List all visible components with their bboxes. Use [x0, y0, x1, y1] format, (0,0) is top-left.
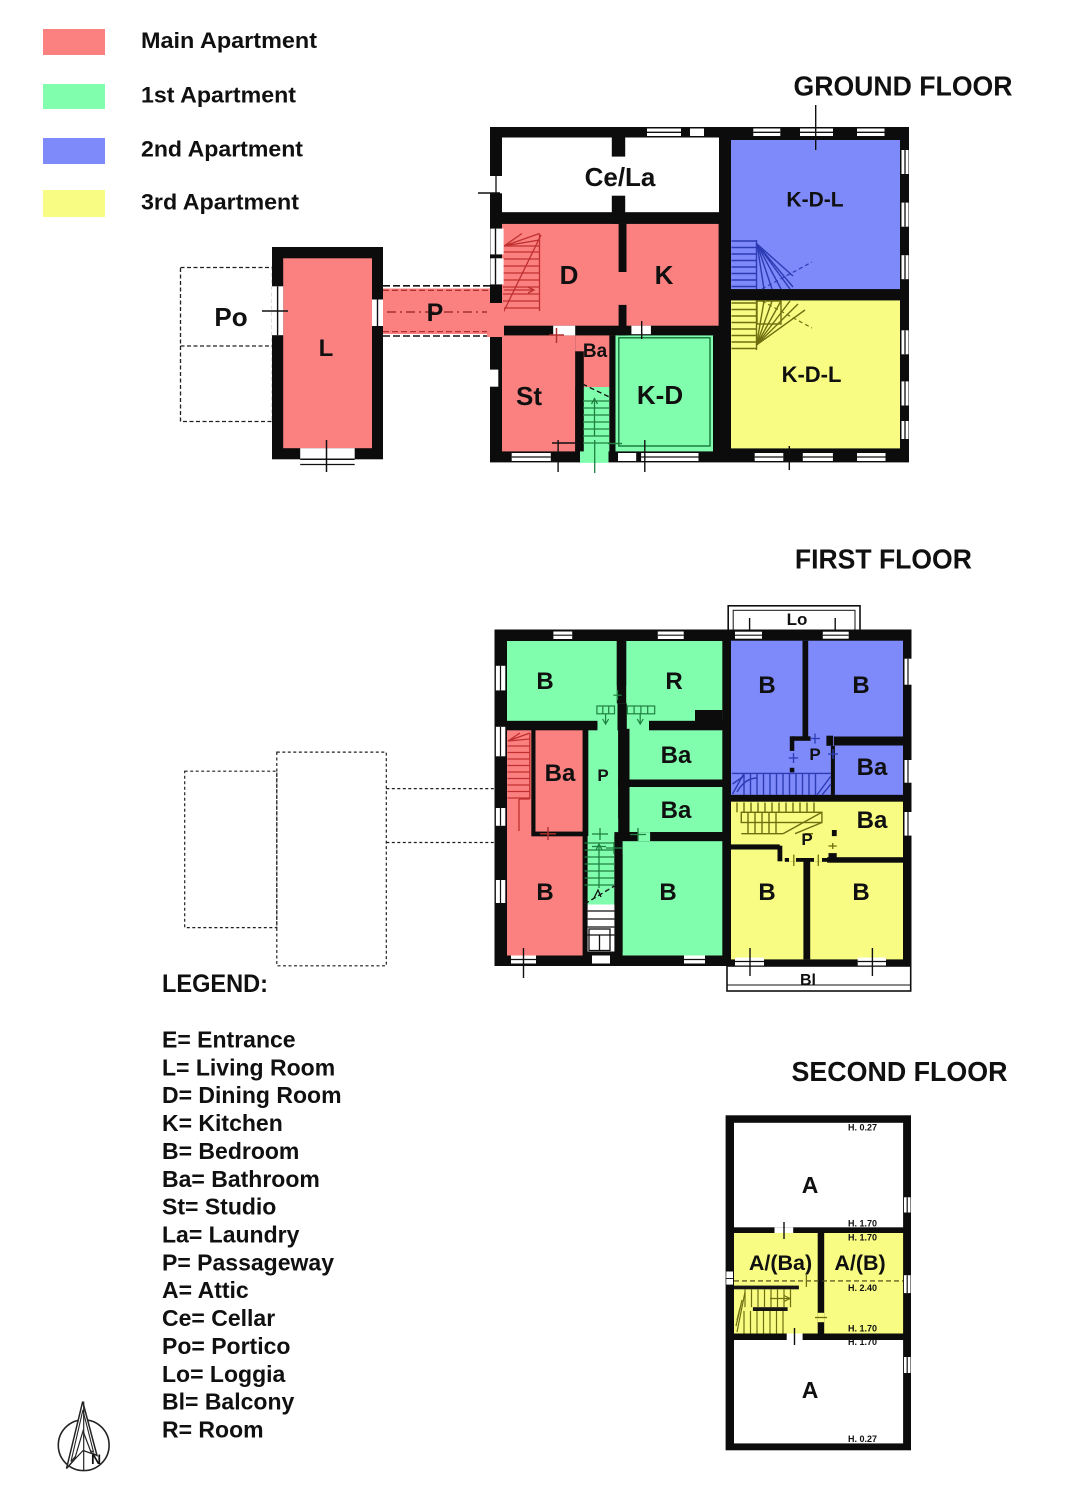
- svg-text:R: R: [665, 668, 682, 695]
- svg-text:P: P: [427, 299, 444, 327]
- svg-text:P= Passageway: P= Passageway: [162, 1249, 334, 1275]
- svg-text:Ba: Ba: [857, 807, 888, 834]
- svg-text:A/(Ba): A/(Ba): [749, 1251, 812, 1275]
- svg-text:B: B: [758, 672, 775, 699]
- svg-text:P: P: [597, 766, 608, 785]
- svg-text:B= Bedroom: B= Bedroom: [162, 1138, 299, 1164]
- svg-text:A= Attic: A= Attic: [162, 1277, 249, 1303]
- svg-text:Ba: Ba: [661, 797, 692, 824]
- svg-text:D: D: [560, 260, 579, 290]
- svg-text:Ba: Ba: [545, 760, 576, 787]
- svg-text:P: P: [809, 745, 820, 764]
- svg-text:E= Entrance: E= Entrance: [162, 1027, 296, 1053]
- svg-text:B: B: [536, 879, 553, 906]
- svg-text:K: K: [655, 260, 674, 290]
- svg-text:B: B: [758, 879, 775, 906]
- svg-text:B: B: [852, 879, 869, 906]
- svg-text:Bl: Bl: [800, 972, 816, 989]
- svg-text:Ba: Ba: [583, 341, 608, 362]
- svg-text:H. 2.40: H. 2.40: [848, 1283, 877, 1293]
- svg-text:La= Laundry: La= Laundry: [162, 1222, 300, 1248]
- svg-text:N: N: [91, 1451, 101, 1467]
- svg-text:H. 1.70: H. 1.70: [848, 1324, 877, 1334]
- svg-text:2nd Apartment: 2nd Apartment: [141, 137, 304, 162]
- svg-text:K-D: K-D: [637, 380, 683, 410]
- svg-text:R= Room: R= Room: [162, 1417, 264, 1443]
- svg-text:H. 0.27: H. 0.27: [848, 1434, 877, 1444]
- svg-text:Bl= Balcony: Bl= Balcony: [162, 1389, 295, 1415]
- svg-text:L= Living Room: L= Living Room: [162, 1054, 335, 1080]
- svg-text:K-D-L: K-D-L: [782, 362, 842, 387]
- svg-text:SECOND FLOOR: SECOND FLOOR: [792, 1056, 1008, 1087]
- svg-text:H. 1.70: H. 1.70: [848, 1233, 877, 1243]
- svg-text:A/(B): A/(B): [834, 1251, 885, 1275]
- svg-text:L: L: [319, 335, 334, 362]
- svg-text:Po: Po: [214, 302, 247, 332]
- svg-text:A: A: [802, 1172, 819, 1198]
- svg-text:Ba= Bathroom: Ba= Bathroom: [162, 1166, 320, 1192]
- svg-text:Lo= Loggia: Lo= Loggia: [162, 1361, 286, 1387]
- svg-text:Lo: Lo: [787, 610, 808, 629]
- svg-text:H. 0.27: H. 0.27: [848, 1123, 877, 1133]
- svg-text:Ba: Ba: [661, 742, 692, 769]
- svg-text:Ce= Cellar: Ce= Cellar: [162, 1305, 275, 1331]
- svg-text:Po= Portico: Po= Portico: [162, 1333, 290, 1359]
- svg-text:1st Apartment: 1st Apartment: [141, 83, 297, 108]
- svg-text:A: A: [802, 1377, 819, 1403]
- svg-text:K= Kitchen: K= Kitchen: [162, 1110, 283, 1136]
- svg-text:H. 1.70: H. 1.70: [848, 1337, 877, 1347]
- svg-text:H. 1.70: H. 1.70: [848, 1219, 877, 1229]
- svg-text:P: P: [801, 830, 812, 849]
- svg-text:Main Apartment: Main Apartment: [141, 28, 318, 53]
- svg-text:K-D-L: K-D-L: [786, 189, 843, 212]
- svg-text:FIRST FLOOR: FIRST FLOOR: [795, 544, 972, 575]
- svg-text:Ba: Ba: [857, 754, 888, 781]
- svg-text:B: B: [852, 672, 869, 699]
- svg-text:3rd Apartment: 3rd Apartment: [141, 190, 300, 215]
- svg-text:St: St: [516, 381, 542, 411]
- svg-text:B: B: [536, 668, 553, 695]
- svg-text:B: B: [659, 879, 676, 906]
- svg-text:Ce/La: Ce/La: [585, 162, 656, 192]
- svg-text:GROUND FLOOR: GROUND FLOOR: [794, 71, 1013, 102]
- svg-text:LEGEND:: LEGEND:: [162, 970, 268, 998]
- svg-text:D= Dining Room: D= Dining Room: [162, 1082, 342, 1108]
- svg-text:St= Studio: St= Studio: [162, 1194, 276, 1220]
